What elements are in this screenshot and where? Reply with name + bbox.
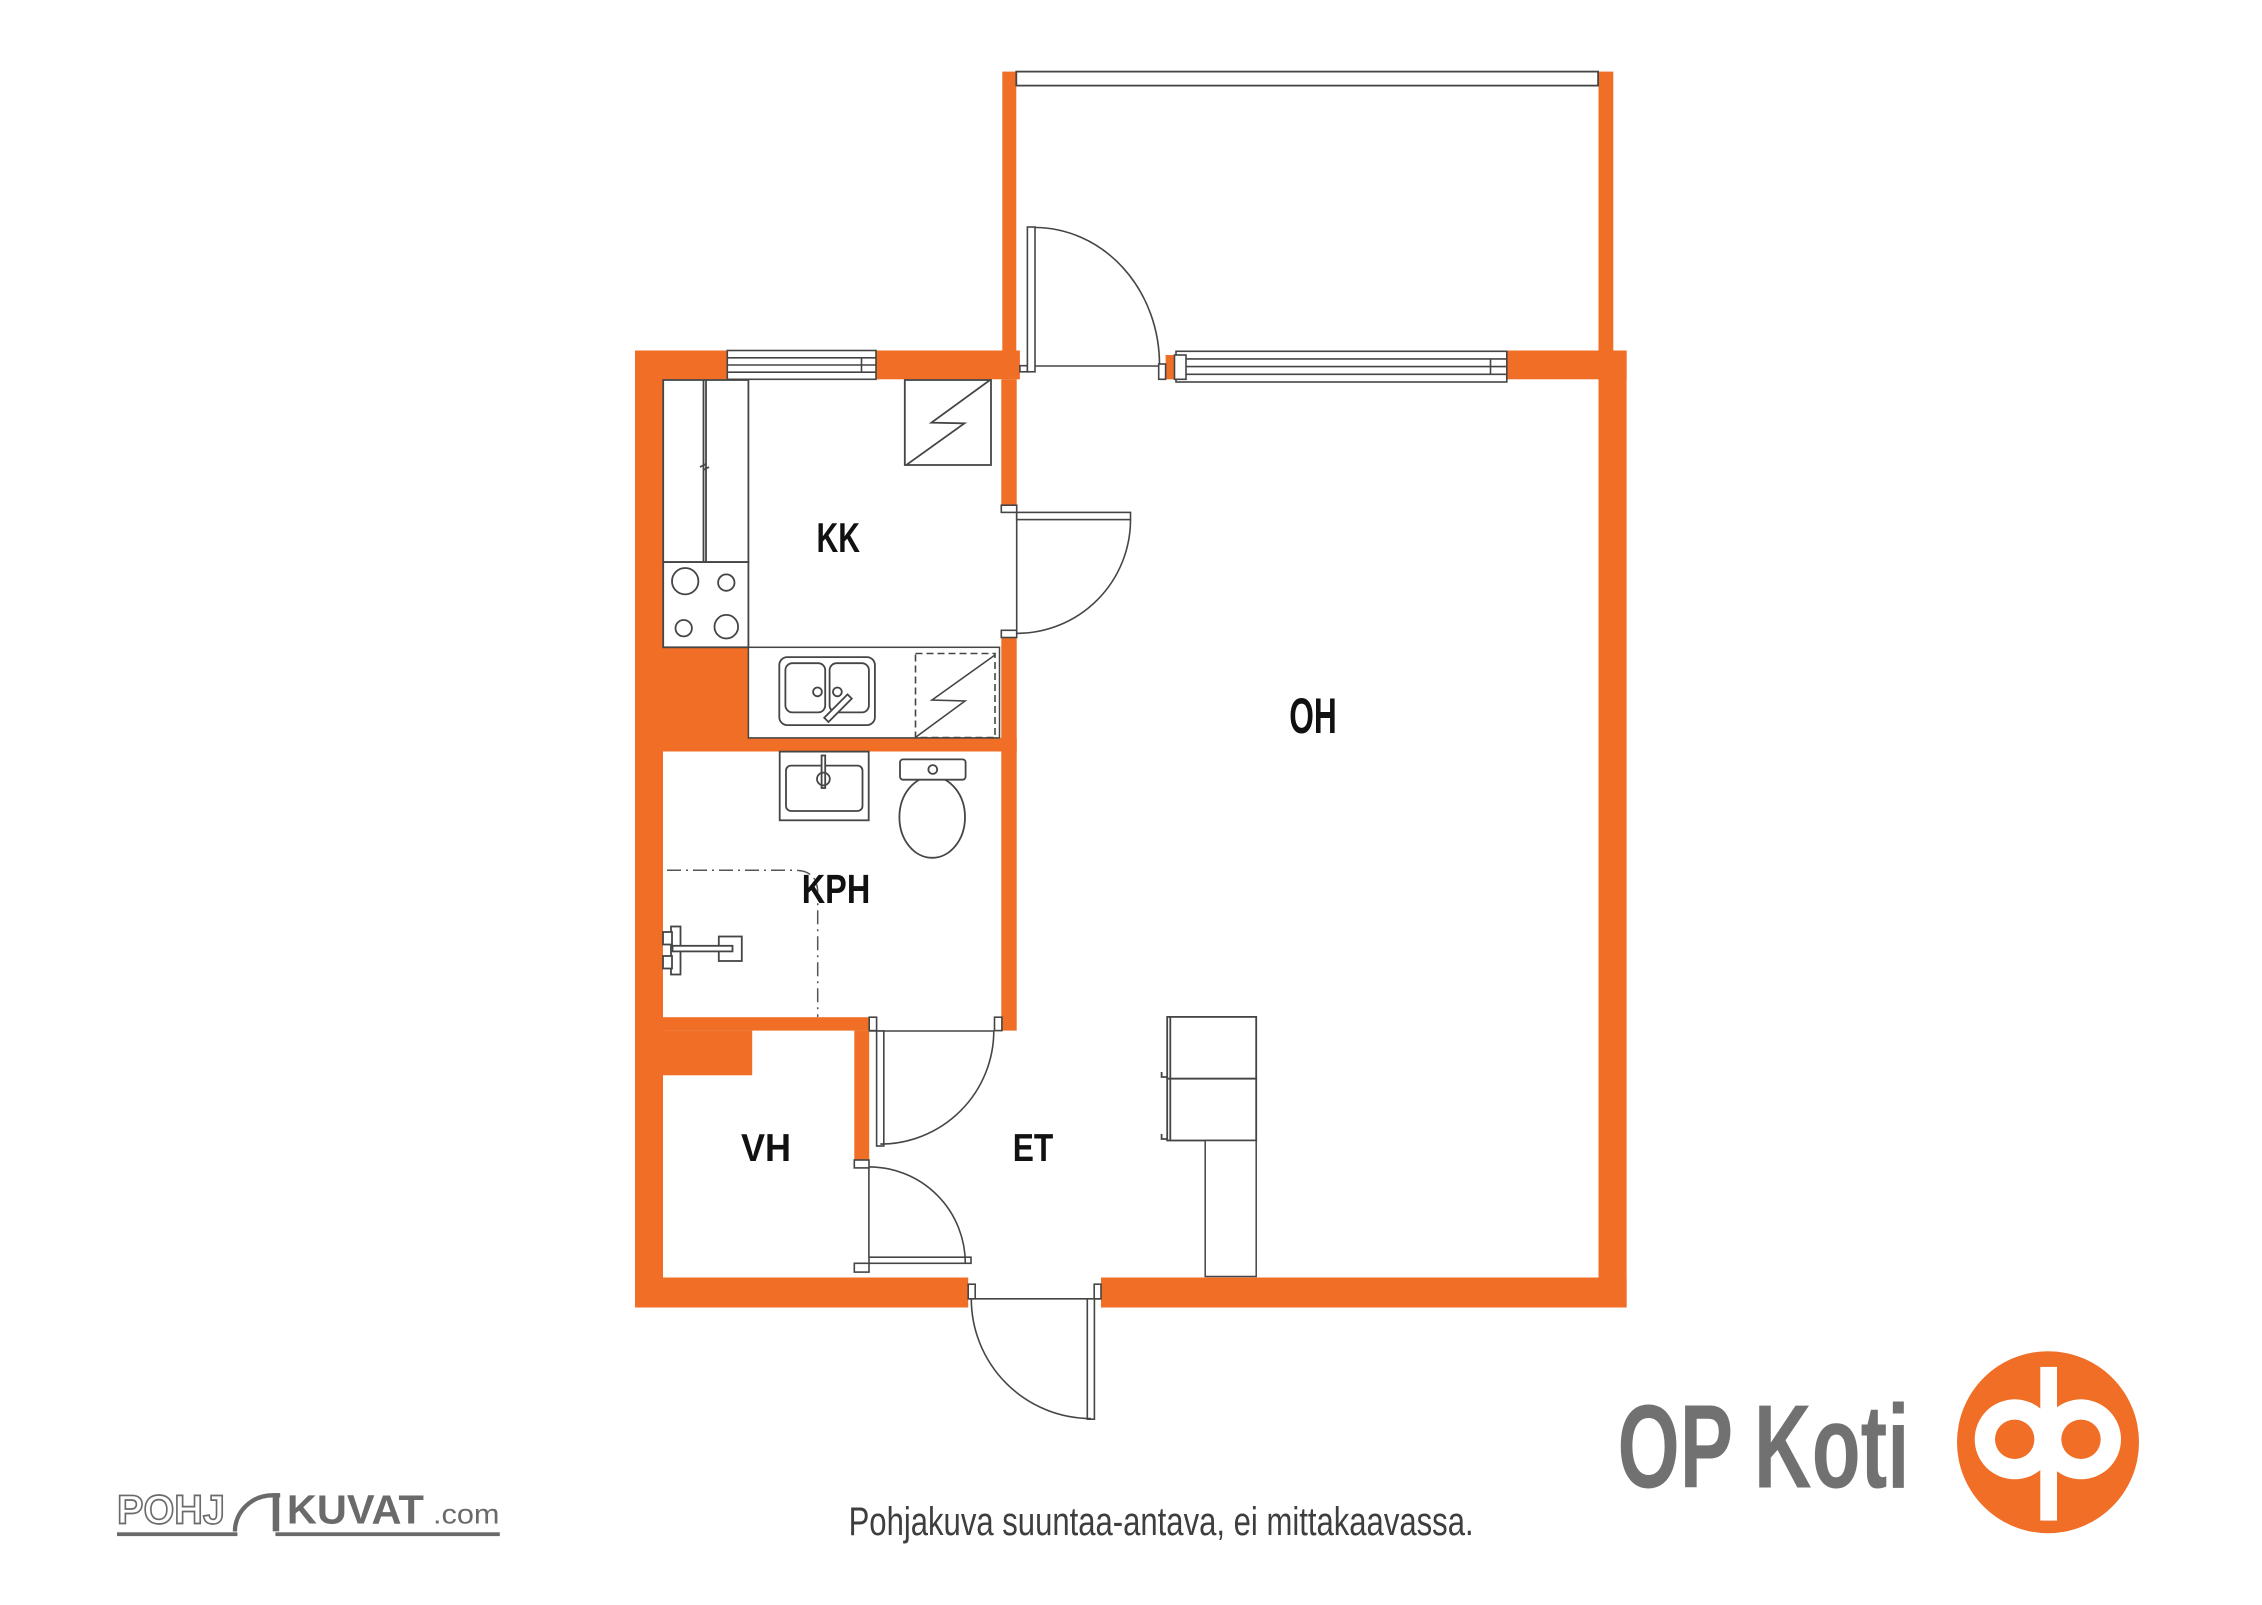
svg-text:ET: ET	[1013, 1127, 1054, 1170]
svg-text:OP Koti: OP Koti	[1618, 1380, 1910, 1513]
svg-text:KPH: KPH	[802, 866, 871, 912]
svg-text:VH: VH	[741, 1127, 791, 1170]
svg-text:POHJ: POHJ	[117, 1487, 225, 1533]
svg-text:KK: KK	[816, 514, 860, 561]
svg-text:OH: OH	[1289, 688, 1337, 744]
svg-text:Pohjakuva suuntaa-antava, ei m: Pohjakuva suuntaa-antava, ei mittakaavas…	[849, 1500, 1474, 1544]
svg-text:KUVAT: KUVAT	[287, 1487, 424, 1533]
svg-text:.com: .com	[433, 1499, 500, 1530]
